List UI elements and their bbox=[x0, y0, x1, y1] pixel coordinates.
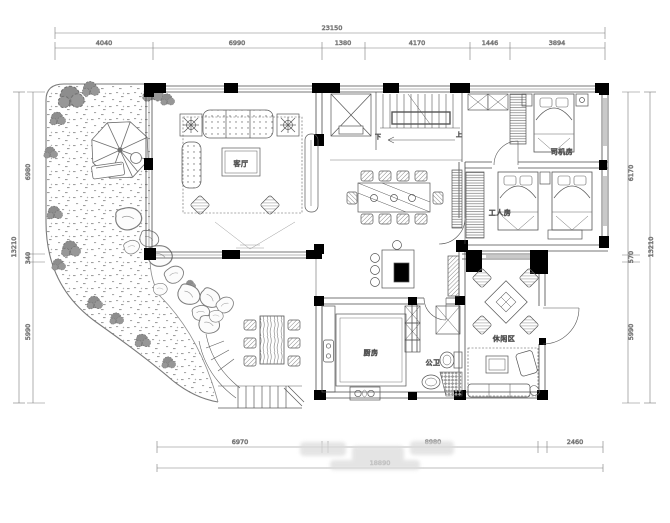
stair-down-label: 下 bbox=[375, 134, 381, 141]
dim-bottom-seg: 6970 bbox=[232, 438, 249, 446]
rug bbox=[468, 348, 538, 396]
worker-bed bbox=[498, 172, 538, 230]
ceiling-light-lines bbox=[215, 222, 295, 249]
leisure-chair bbox=[519, 315, 539, 335]
sofa bbox=[203, 110, 273, 138]
bar-stool bbox=[393, 241, 402, 250]
kitchen-label: 厨房 bbox=[364, 348, 379, 357]
sofa bbox=[468, 384, 530, 397]
leisure-area-label: 休闲区 bbox=[493, 334, 516, 343]
shower-box bbox=[436, 306, 460, 334]
dim-left: 13210 6980 340 5990 bbox=[10, 92, 45, 403]
stair-arrow bbox=[388, 137, 455, 143]
bay-window-sill bbox=[603, 98, 607, 146]
dim-right-total: 13210 bbox=[647, 237, 655, 258]
dim-top-seg: 4170 bbox=[409, 39, 426, 47]
dim-top-seg: 1380 bbox=[335, 39, 352, 47]
armchair bbox=[260, 195, 280, 215]
stair-up-label: 上 bbox=[456, 131, 462, 139]
window-sill bbox=[486, 255, 530, 258]
worker-bed bbox=[552, 172, 592, 230]
public-bath: 公卫 bbox=[422, 298, 462, 396]
dim-left-total: 13210 bbox=[10, 237, 18, 258]
potted-plant bbox=[280, 117, 296, 133]
dim-top-seg: 1446 bbox=[482, 39, 499, 47]
kitchen-sink bbox=[324, 340, 334, 362]
game-table bbox=[485, 281, 527, 323]
duct-shaft bbox=[448, 256, 459, 296]
worker-room-label: 工人房 bbox=[489, 208, 512, 217]
dim-right-seg: 570 bbox=[627, 251, 635, 263]
floor-plan-page: 下 上 客厅 司机房 bbox=[0, 0, 670, 523]
tall-cabinets bbox=[405, 306, 420, 352]
public-bath-label: 公卫 bbox=[426, 359, 441, 367]
entry-cabinet bbox=[468, 94, 488, 110]
wardrobe bbox=[510, 94, 526, 144]
outdoor-dining-table bbox=[244, 316, 300, 366]
dim-top-seg: 4040 bbox=[96, 39, 113, 47]
dining-area bbox=[347, 171, 443, 224]
dim-right-seg: 5990 bbox=[627, 324, 635, 341]
dim-top: 23150 4040 6990 1380 4170 1446 3894 bbox=[55, 24, 605, 60]
living-room: 客厅 bbox=[180, 110, 318, 249]
watermark-smudge bbox=[300, 441, 454, 470]
bar-stool bbox=[371, 266, 380, 275]
bath-door bbox=[424, 298, 446, 320]
low-table bbox=[486, 356, 508, 373]
dim-left-seg: 5990 bbox=[24, 324, 32, 341]
dim-left-seg: 340 bbox=[24, 252, 32, 264]
kitchen: 厨房 bbox=[322, 306, 420, 400]
bay-window-sill bbox=[603, 176, 607, 226]
armchair bbox=[515, 350, 538, 377]
bench bbox=[548, 230, 582, 239]
driver-bed bbox=[534, 94, 574, 152]
stair-treads bbox=[383, 94, 453, 128]
armchair bbox=[190, 195, 210, 215]
worker-room: 工人房 bbox=[466, 172, 592, 239]
floor-plan-canvas: 下 上 客厅 司机房 bbox=[0, 0, 670, 523]
dim-bottom-seg: 2460 bbox=[567, 438, 584, 446]
counter bbox=[322, 306, 335, 392]
seat-cushion bbox=[131, 153, 142, 164]
bar-stool bbox=[371, 278, 380, 287]
wash-basin bbox=[422, 375, 440, 389]
dim-right-seg: 6170 bbox=[627, 165, 635, 182]
stair-landing bbox=[392, 112, 450, 124]
air-grille bbox=[452, 170, 462, 228]
driver-room-label: 司机房 bbox=[551, 147, 574, 156]
dim-top-seg: 3894 bbox=[549, 39, 566, 47]
dim-left-seg: 6980 bbox=[24, 164, 32, 181]
chaise bbox=[182, 142, 201, 188]
nightstand bbox=[576, 94, 588, 106]
dim-top-total: 23150 bbox=[322, 24, 343, 32]
entry-cabinet bbox=[488, 94, 508, 110]
dim-top-seg: 6990 bbox=[229, 39, 246, 47]
living-room-label: 客厅 bbox=[234, 159, 249, 168]
driver-room-door bbox=[494, 141, 518, 165]
potted-plant bbox=[183, 117, 199, 133]
stair-core: 下 上 bbox=[330, 92, 462, 160]
wardrobe bbox=[466, 172, 484, 238]
terrace-stairs bbox=[238, 386, 304, 408]
leisure-door bbox=[543, 308, 579, 344]
leisure-chair bbox=[472, 315, 492, 335]
leisure-area: 休闲区 bbox=[468, 268, 579, 397]
bar-stool bbox=[371, 254, 380, 263]
dim-right: 6170 570 5990 13210 bbox=[622, 92, 656, 403]
driver-room: 司机房 bbox=[468, 94, 588, 165]
nightstand bbox=[540, 172, 550, 184]
